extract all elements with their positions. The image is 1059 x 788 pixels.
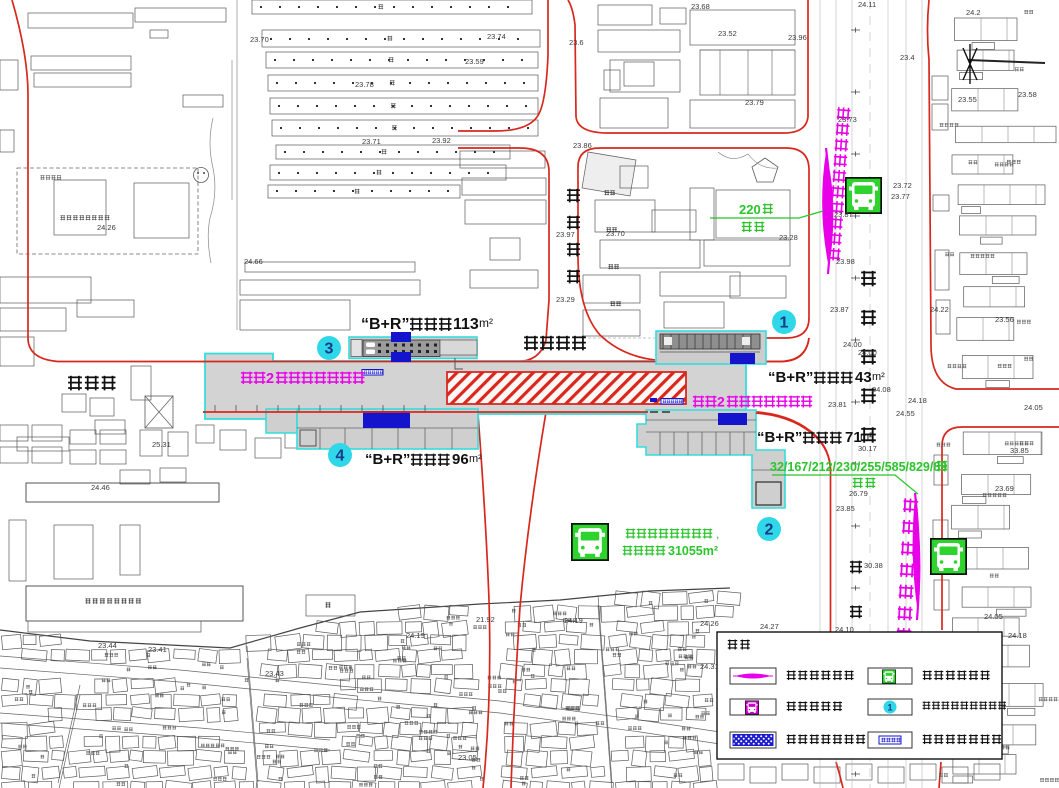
svg-text:24.05: 24.05: [1024, 403, 1043, 412]
svg-text:m²: m²: [860, 431, 873, 443]
svg-text:3: 3: [325, 341, 334, 358]
svg-text:220: 220: [739, 202, 761, 217]
svg-text:23.59: 23.59: [465, 57, 484, 66]
svg-text:23.4: 23.4: [900, 53, 915, 62]
svg-text:23.79: 23.79: [745, 98, 764, 107]
svg-text:23.72: 23.72: [893, 181, 912, 190]
svg-text:23.05: 23.05: [458, 753, 477, 762]
svg-text:24.19: 24.19: [406, 631, 425, 640]
svg-text:30.38: 30.38: [864, 561, 883, 570]
svg-text:23.58: 23.58: [1018, 90, 1037, 99]
svg-text:23.28: 23.28: [779, 233, 798, 242]
svg-text:23.81: 23.81: [828, 400, 847, 409]
svg-text:23.71: 23.71: [362, 137, 381, 146]
svg-text:1: 1: [887, 703, 892, 713]
svg-text:23.73: 23.73: [838, 115, 857, 124]
svg-text:4: 4: [336, 448, 345, 465]
svg-text:23.87: 23.87: [834, 210, 853, 219]
svg-text:1: 1: [780, 315, 789, 332]
svg-text:23.97: 23.97: [556, 230, 575, 239]
svg-text:24.11: 24.11: [858, 0, 876, 9]
svg-text:23.78: 23.78: [355, 80, 374, 89]
svg-text:“B+R”: “B+R”: [361, 316, 409, 333]
svg-text:“B+R”: “B+R”: [365, 451, 410, 468]
svg-text:24.55: 24.55: [896, 409, 915, 418]
svg-text:96: 96: [452, 451, 469, 468]
svg-text:33.85: 33.85: [1010, 446, 1029, 455]
svg-text:“B+R”: “B+R”: [768, 369, 813, 386]
svg-text:24.27: 24.27: [760, 622, 779, 631]
svg-text:23.98: 23.98: [836, 257, 855, 266]
svg-text:23.69: 23.69: [995, 484, 1014, 493]
svg-text:2: 2: [266, 371, 274, 387]
svg-text:23.41: 23.41: [148, 645, 167, 654]
svg-text:24.2: 24.2: [966, 8, 981, 17]
svg-text:23.6: 23.6: [569, 38, 584, 47]
svg-text:26.79: 26.79: [849, 489, 868, 498]
svg-text:“B+R”: “B+R”: [757, 429, 802, 446]
svg-text:24.66: 24.66: [244, 257, 263, 266]
svg-text:24.19: 24.19: [564, 616, 583, 625]
svg-text:23.68: 23.68: [691, 2, 710, 11]
svg-text:23.77: 23.77: [891, 192, 910, 201]
svg-text:23.86: 23.86: [573, 141, 592, 150]
svg-text:m²: m²: [872, 371, 885, 383]
svg-text:24.18: 24.18: [908, 396, 927, 405]
svg-text:24.26: 24.26: [700, 619, 719, 628]
svg-text:30.17: 30.17: [858, 444, 877, 453]
svg-text:24.46: 24.46: [91, 483, 110, 492]
svg-text:23.74: 23.74: [487, 32, 506, 41]
svg-text:23.85: 23.85: [836, 504, 855, 513]
svg-text:21.92: 21.92: [476, 615, 495, 624]
svg-text:,: ,: [716, 527, 719, 541]
svg-text:23.92: 23.92: [432, 136, 451, 145]
svg-text:24.22: 24.22: [930, 305, 949, 314]
svg-text:23.44: 23.44: [98, 641, 117, 650]
svg-text:31055m²: 31055m²: [668, 544, 718, 558]
svg-text:23.87: 23.87: [830, 305, 849, 314]
svg-text:23.52: 23.52: [718, 29, 737, 38]
svg-text:m²: m²: [479, 316, 493, 330]
svg-text:23.43: 23.43: [265, 669, 284, 678]
svg-text:24.05: 24.05: [984, 612, 1003, 621]
svg-text:23.70: 23.70: [606, 229, 625, 238]
svg-text:43: 43: [855, 369, 872, 386]
svg-text:24.31: 24.31: [700, 662, 719, 671]
svg-text:2: 2: [765, 522, 774, 539]
svg-text:23.56: 23.56: [995, 315, 1014, 324]
svg-text:24.18: 24.18: [1008, 631, 1027, 640]
svg-text:25.31: 25.31: [152, 440, 171, 449]
svg-text:23.29: 23.29: [556, 295, 575, 304]
svg-text:24.00: 24.00: [858, 348, 877, 357]
svg-text:23.55: 23.55: [958, 95, 977, 104]
svg-text:24.08: 24.08: [872, 385, 891, 394]
svg-text:m²: m²: [469, 453, 482, 465]
svg-text:113: 113: [453, 316, 479, 333]
svg-text:32/167/212/230/255/585/829/89: 32/167/212/230/255/585/829/89: [770, 460, 947, 474]
svg-text:23.96: 23.96: [788, 33, 807, 42]
svg-text:23.70: 23.70: [250, 35, 269, 44]
svg-text:2: 2: [717, 394, 725, 410]
svg-text:24.26: 24.26: [97, 223, 116, 232]
